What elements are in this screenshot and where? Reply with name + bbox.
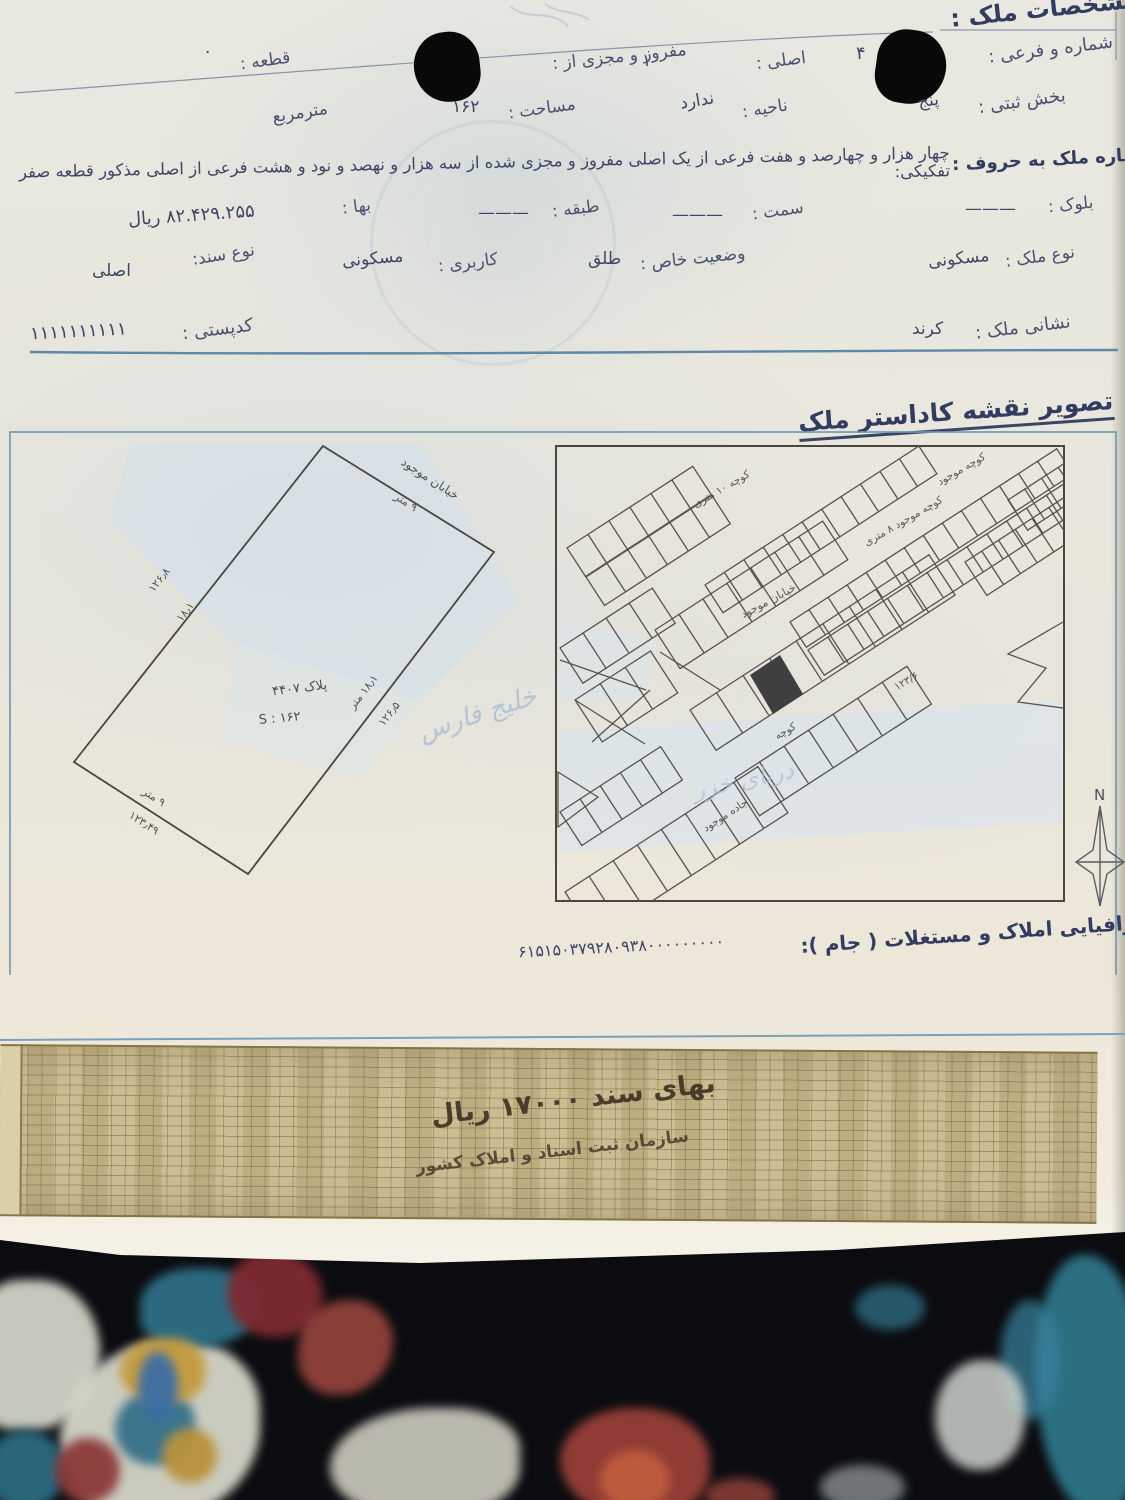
carpet-blob [855,1285,925,1330]
city-street-label: خیابان موجود [739,581,798,621]
stamp-band-margin [0,1046,23,1214]
carpet-blob [55,1438,120,1500]
field-value: · [205,44,210,63]
field-value: طلق [588,250,621,269]
city-street-label: کوچه ۱۰ متری [691,468,752,510]
divider-line [0,1033,1125,1041]
field-value: ۱۶۲ [452,98,479,117]
compass-north-label: N [1094,786,1105,804]
field-value: ——— [478,204,529,223]
city-street-label: کوچه موجود [935,451,987,488]
carpet-blob [330,1408,520,1500]
plan-dimension: ۱۲۳٫۴۹ [126,809,161,838]
field-value: اصلی [92,262,131,281]
photo-of-deed: مشخصات ملک : شماره و فرعی : ۴ اصلی : ۱ م… [0,0,1125,1500]
carpet-blob [820,1465,905,1500]
carpet-blob [935,1360,1025,1470]
field-value: ——— [965,200,1016,219]
carpet-blob [298,1300,393,1395]
city-street-label: کوچه موجود ۸ متری [862,494,945,549]
field-value: پنج [917,91,940,112]
field-value: کرند [912,320,943,339]
carpet-blob [162,1428,217,1483]
field-value: ——— [672,206,723,225]
field-label: بها : [341,196,372,218]
stamp-price-text: بهای سند ۱۷۰۰۰ ریال [429,1068,717,1132]
deed-document: مشخصات ملک : شماره و فرعی : ۴ اصلی : ۱ م… [0,0,1125,1268]
carpet-blob [138,1352,178,1422]
stamp-org-text: سازمان ثبت اسناد و املاک کشور [415,1126,690,1177]
guilloche-stamp-band: بهای سند ۱۷۰۰۰ ریال سازمان ثبت اسناد و ا… [0,1044,1098,1224]
compass-north-icon [1076,806,1124,906]
subject-parcel-highlight [750,655,803,714]
plan-dimension: ۹ متر [139,784,168,809]
field-value: ۴ [856,44,866,64]
cadastre-map-figure: خیابان موجود ۹ متر ۱۲۶٫۸ ۱۸٫۱ ۱۸٫۱ متر ۱… [0,390,1125,975]
plan-watermark: خلیج فارس [415,681,541,748]
carpet-blob [705,1478,775,1500]
